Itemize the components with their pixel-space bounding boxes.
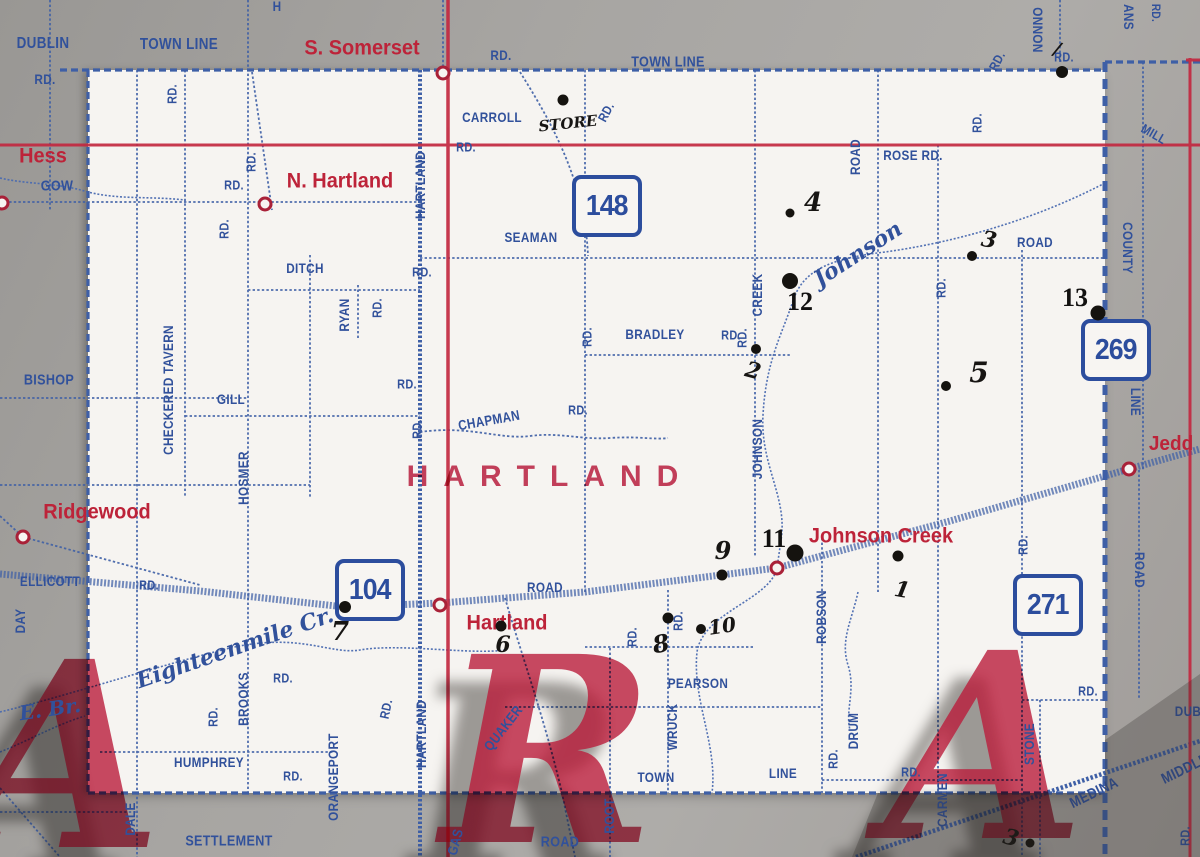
route-number: 269 — [1095, 334, 1137, 367]
handwritten-mark-4-2: 4 — [804, 190, 822, 216]
road-label-rd-42: RD. — [971, 113, 984, 133]
road-label-creek-46: CREEK — [750, 274, 764, 317]
route-shield-271: 271 — [1013, 574, 1083, 636]
poi-dot-15 — [1026, 839, 1035, 848]
typed-mark-12: 12 — [787, 289, 813, 315]
road-label-carroll-30: CARROLL — [462, 110, 522, 124]
road-label-rd-63: RD. — [1078, 685, 1098, 698]
road-label-rd-62: RD. — [901, 766, 921, 779]
road-label-gow-12: GOW — [41, 179, 74, 194]
road-label-rd-19: RD. — [224, 179, 244, 192]
poi-dot-0 — [558, 95, 569, 106]
road-label-brooks-67: BROOKS — [236, 672, 250, 726]
poi-dot-10 — [893, 551, 904, 562]
handwritten-mark-5-4: 5 — [969, 359, 988, 387]
typed-mark-13: 13 — [1062, 285, 1088, 311]
road-label-seaman-33: SEAMAN — [505, 230, 558, 244]
poi-dot-1 — [1056, 66, 1068, 78]
road-label-rd-28: RD. — [397, 378, 417, 391]
road-label-rd-56: RD. — [672, 611, 685, 631]
road-label-rd-69: RD. — [273, 672, 293, 685]
road-label-wruck-57: WRUCK — [665, 704, 679, 751]
road-label-bishop-13: BISHOP — [24, 373, 74, 388]
road-label-rd-4: RD. — [490, 48, 511, 62]
poi-dot-12 — [496, 621, 507, 632]
road-label-road-52: ROAD — [527, 580, 563, 594]
road-label-h-3: H — [273, 0, 282, 13]
place-label-s-somerset: S. Somerset — [304, 38, 419, 59]
handwritten-mark-8-9: 8 — [651, 631, 672, 658]
poi-dot-14 — [696, 624, 706, 634]
road-label-carmen-78: CARMEN — [935, 773, 949, 827]
road-label-checkered-tavern-25: CHECKERED TAVERN — [161, 325, 175, 455]
road-label-orangeport-66: ORANGEPORT — [326, 733, 340, 821]
route-number: 148 — [586, 190, 628, 223]
road-label-road-50: ROAD — [1133, 552, 1147, 588]
road-label-rd-22: RD. — [412, 266, 432, 279]
place-label-hartland: Hartland — [467, 613, 548, 634]
road-label-rd-68: RD. — [207, 707, 220, 727]
road-label-town-line-5: TOWN LINE — [631, 55, 704, 70]
handwritten-mark-7-7: 7 — [331, 619, 349, 645]
overprint-letter-r-1: R — [441, 623, 655, 857]
poi-dot-3 — [967, 251, 977, 261]
place-label-ridgewood: Ridgewood — [43, 502, 150, 523]
road-label-county-48: COUNTY — [1121, 222, 1135, 274]
road-label-rd-39: RD. — [581, 327, 594, 347]
road-label-settlement-74: SETTLEMENT — [185, 834, 272, 849]
road-label-stone-79: STONE — [1022, 723, 1036, 765]
road-label-robson-53: ROBSON — [814, 590, 828, 644]
village-circle-ridgewood — [16, 530, 31, 545]
road-label-rd-18: RD. — [245, 152, 258, 172]
poi-dot-6 — [941, 381, 951, 391]
road-label-bradley-37: BRADLEY — [625, 327, 684, 341]
road-label-ditch-21: DITCH — [286, 261, 324, 275]
road-label-rd-83: RD. — [1179, 826, 1192, 846]
road-label-day-16: DAY — [13, 609, 27, 634]
handwritten-mark-9-11: 9 — [715, 539, 732, 563]
poi-dot-5 — [751, 344, 761, 354]
road-label-pearson-54: PEARSON — [668, 676, 729, 690]
road-label-road-41: ROAD — [848, 139, 862, 175]
road-label-rd-44: RD. — [935, 278, 948, 298]
road-label-rd-10: RD. — [1150, 4, 1162, 22]
road-label-ellicott-14: ELLICOTT — [20, 574, 80, 588]
poi-dot-9 — [717, 570, 728, 581]
road-label-hartland-65: HARTLAND — [414, 700, 428, 768]
road-label-rd-31: RD. — [456, 141, 476, 154]
road-label-rd-47: RD. — [736, 328, 749, 348]
route-shield-269: 269 — [1081, 319, 1151, 381]
road-label-ryan-23: RYAN — [337, 298, 351, 331]
place-label-jedd: Jedd — [1149, 434, 1193, 454]
typed-mark-11: 11 — [762, 526, 787, 552]
road-label-onnon-7: ONNON — [1031, 7, 1045, 52]
road-label-road-43: ROAD — [1017, 235, 1053, 249]
road-label-rd-24: RD. — [371, 298, 384, 318]
road-label-rd-61: RD. — [827, 749, 840, 769]
road-label-rd-72: RD. — [378, 698, 395, 720]
road-label-town-58: TOWN — [637, 770, 674, 784]
road-label-rd-15: RD. — [139, 579, 159, 592]
road-label-rd-36: RD. — [411, 419, 424, 439]
road-label-rd-55: RD. — [626, 627, 639, 647]
route-shield-148: 148 — [572, 175, 642, 237]
road-label-johnson-45: JOHNSON — [750, 419, 764, 480]
road-label-humphrey-70: HUMPHREY — [174, 755, 244, 769]
road-label-rd-17: RD. — [166, 84, 179, 104]
poi-dot-4 — [786, 209, 795, 218]
handwritten-mark-6-8: 6 — [495, 634, 510, 656]
road-label-gill-27: GILL — [217, 392, 245, 406]
poi-dot-7 — [1091, 306, 1106, 321]
place-label-johnson-creek: Johnson Creek — [809, 526, 953, 547]
place-label-hess: Hess — [19, 146, 67, 167]
village-circle-jedd — [1122, 462, 1137, 477]
road-label-hosmer-26: HOSMER — [236, 451, 250, 505]
road-label-ans-9: ANS — [1122, 4, 1136, 30]
village-circle-johnson-creek — [770, 561, 785, 576]
route-number: 271 — [1027, 589, 1069, 622]
road-label-rose-rd-40: ROSE RD. — [883, 148, 943, 162]
overprint-letter-a-2: A — [885, 619, 1085, 857]
poi-dot-13 — [663, 613, 674, 624]
poi-dot-11 — [339, 601, 351, 613]
village-circle-hartland — [433, 598, 448, 613]
road-label-rd-20: RD. — [218, 219, 231, 239]
road-label-dublin-0: DUBLIN — [17, 36, 70, 52]
township-label: HARTLAND — [407, 460, 694, 494]
poi-dot-8 — [787, 545, 804, 562]
road-label-root-77: ROOT — [602, 798, 616, 833]
road-label-town-line-2: TOWN LINE — [140, 37, 218, 53]
route-number: 104 — [349, 574, 391, 607]
road-label-rd-35: RD. — [568, 404, 588, 417]
road-label-line-49: LINE — [1129, 388, 1143, 416]
village-circle-n-hartland — [258, 197, 273, 212]
place-label-n-hartland: N. Hartland — [287, 171, 393, 192]
road-label-rd-51: RD. — [1017, 535, 1030, 555]
road-label-road-76: ROAD — [541, 835, 579, 850]
handwritten-mark-10-10: 10 — [707, 614, 737, 638]
road-label-line-59: LINE — [769, 766, 797, 780]
road-label-hartland-29: HARTLAND — [413, 151, 427, 219]
paper-road-map: ARA HARTLAND DUBLINRD.TOWN LINEHRD.TOWN … — [0, 0, 1200, 857]
road-label-rd-1: RD. — [34, 72, 55, 86]
village-circle-s-somerset — [436, 66, 451, 81]
road-label-rd-71: RD. — [283, 770, 303, 783]
road-label-drum-60: DRUM — [846, 713, 860, 750]
road-label-dale-73: DALE — [123, 802, 137, 835]
road-label-dub-82: DUB — [1175, 704, 1200, 718]
